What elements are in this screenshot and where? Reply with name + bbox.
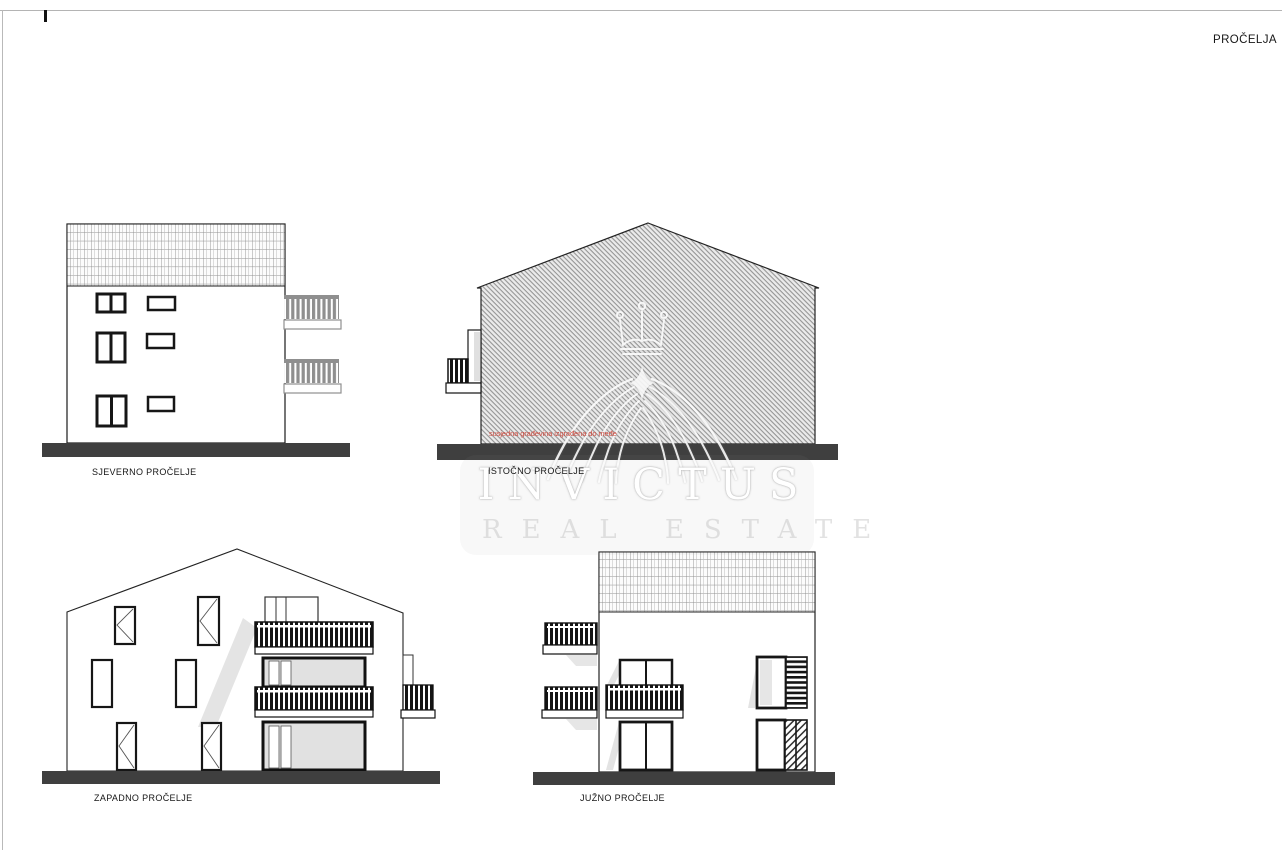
balcony [446,330,481,393]
label-south-elevation: JUŽNO PROČELJE [580,793,665,803]
balcony [255,622,373,654]
window-small [148,297,175,310]
watermark-tagline: REAL ESTATE [462,516,814,545]
glazed-wall-ground [263,722,365,770]
door [202,723,221,770]
label-north-elevation: SJEVERNO PROČELJE [92,467,196,477]
west-elevation [42,549,440,784]
sheet-title: PROČELJA [1213,34,1277,46]
glazed-wall-middle [263,658,365,687]
shadow [566,719,597,730]
shuttered-window [748,657,807,708]
balcony [606,685,683,718]
window-double [97,294,125,312]
shadow [566,655,597,666]
window-small [148,397,174,411]
drawing-sheet: INVICTUS REAL ESTATE PROČELJA SJEVERNO P… [0,0,1282,850]
balcony-slab [284,320,341,329]
balcony-slab [401,710,435,718]
balcony [255,687,373,717]
hatched-door [757,720,807,770]
south-roof-tile-band [599,552,815,612]
north-elevation [42,224,350,457]
window-double [97,333,125,362]
balcony-railing [403,685,433,710]
neighbor-building-annotation: susjedna građevina izgrađena do međe [489,429,617,438]
balcony [542,687,597,730]
side-balcony [401,655,435,718]
balcony-slab [542,710,597,718]
ground-line [42,771,440,784]
terrace-door [265,597,318,623]
balcony-slab [255,710,373,717]
south-elevation [533,552,835,785]
balcony-slab [284,384,341,393]
balcony [284,295,341,329]
balcony-slab [446,383,481,393]
balcony-slab [606,710,683,718]
balcony-railing [448,359,468,383]
ground-line [533,772,835,785]
balcony [284,359,341,393]
balcony [543,623,597,666]
balcony-slab [543,645,597,654]
label-east-elevation: ISTOČNO PROČELJE [488,466,584,476]
window [92,660,112,707]
north-roof-tile-band [67,224,285,286]
window-small [147,334,174,348]
window-casement [198,597,219,645]
wall-return [403,655,413,685]
winged-crown-emblem-icon [520,293,765,488]
window-double [97,396,126,426]
ground-line [42,443,350,457]
label-west-elevation: ZAPADNO PROČELJE [94,793,192,803]
balcony-slab [255,647,373,654]
door [117,723,136,770]
window-casement [115,607,135,644]
window [176,660,196,707]
louver-shutter [786,657,807,708]
